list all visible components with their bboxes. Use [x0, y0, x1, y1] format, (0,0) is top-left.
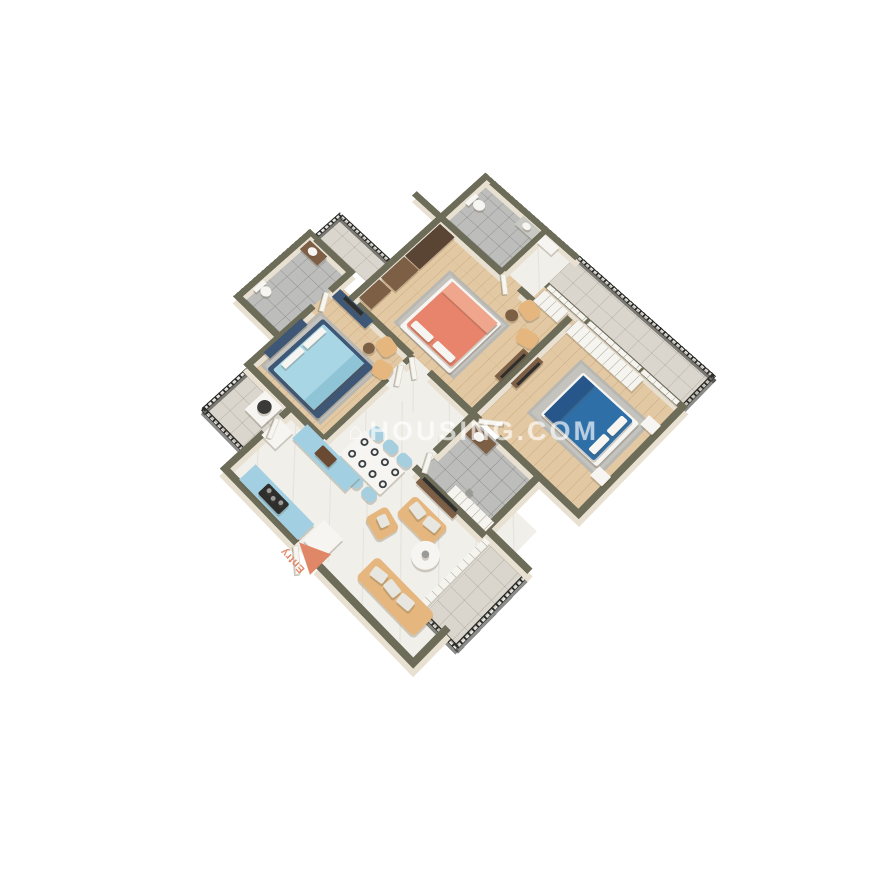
isometric-scene: Entry	[0, 0, 870, 870]
apartment-plan: Entry	[128, 123, 722, 692]
floor-plan-render: Entry ⌂ HOUSING.COM	[0, 0, 870, 870]
